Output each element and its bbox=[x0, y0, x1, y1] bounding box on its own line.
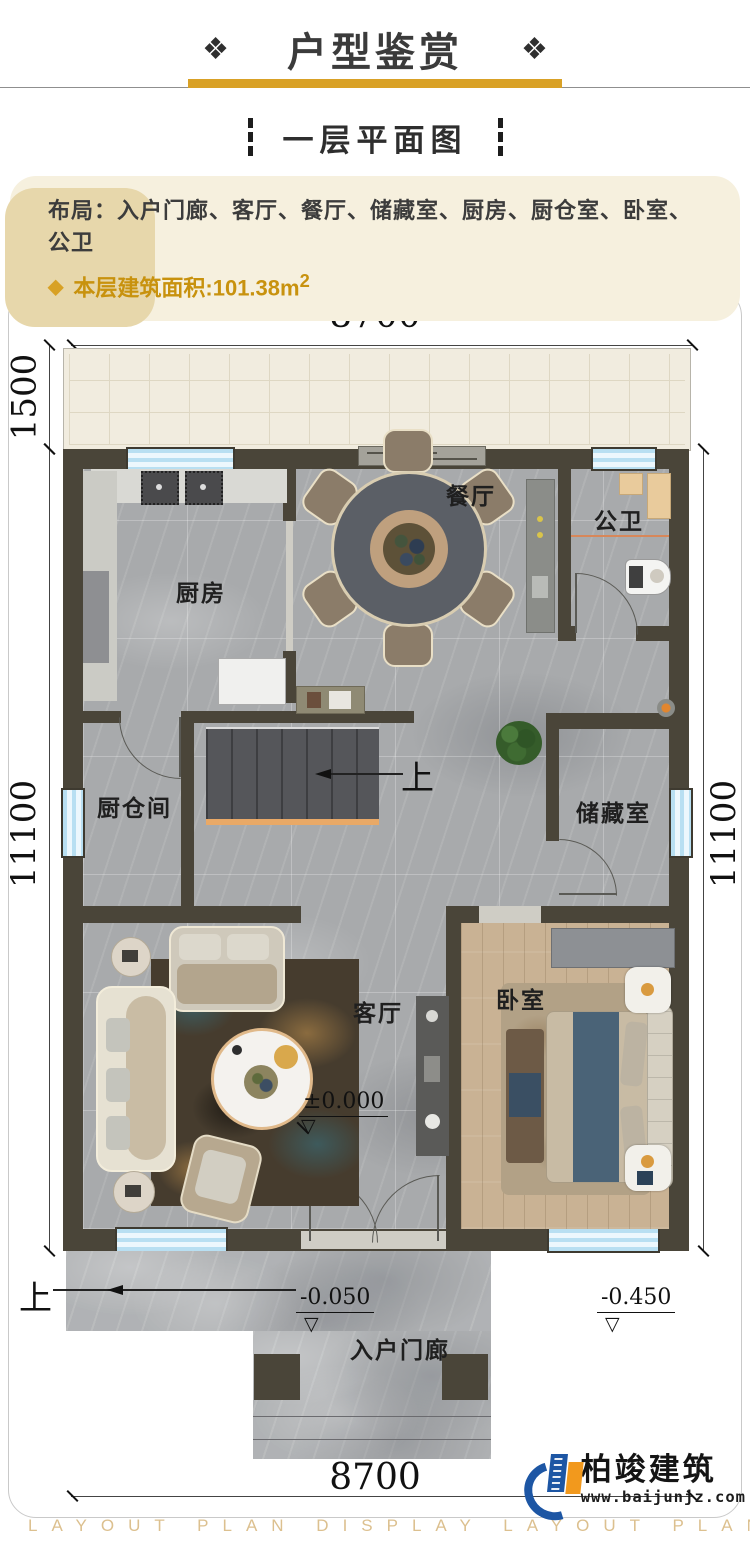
room-label-porch: 入户门廊 bbox=[350, 1331, 450, 1365]
toilet-cistern bbox=[629, 566, 643, 588]
bench-cloth bbox=[509, 1073, 541, 1117]
terrace bbox=[63, 348, 691, 451]
wall-pantry-top-a bbox=[63, 711, 121, 723]
bedroom-mat bbox=[551, 928, 675, 968]
brand-logo-icon bbox=[524, 1452, 575, 1516]
porch-step-line bbox=[253, 1439, 491, 1440]
bed-pillow bbox=[620, 1021, 649, 1087]
console-item bbox=[329, 691, 351, 709]
sofa-seat bbox=[177, 964, 277, 1004]
stair-direction-line bbox=[321, 773, 403, 775]
kitchen-cooktop bbox=[83, 571, 109, 663]
room-label-pantry: 厨仓间 bbox=[97, 789, 172, 823]
wall-storage-left bbox=[546, 713, 559, 841]
sofa-cushion bbox=[227, 934, 269, 960]
nightstand-lamp bbox=[641, 1155, 654, 1168]
level-marker-living: ±0.000 bbox=[299, 1089, 388, 1117]
porch-slab-upper bbox=[66, 1251, 491, 1331]
bath-shelf bbox=[619, 473, 643, 495]
console-decor bbox=[424, 1056, 440, 1082]
sofa-seat bbox=[126, 996, 166, 1160]
nightstand-lamp bbox=[641, 983, 654, 996]
wall-bath-bottom-b bbox=[636, 626, 669, 641]
dash-bar-icon-left bbox=[248, 118, 253, 156]
dim-terrace-depth: 1500 bbox=[8, 347, 47, 447]
sideboard-item bbox=[537, 516, 543, 522]
dim-line-top bbox=[71, 345, 693, 346]
toilet bbox=[625, 559, 671, 595]
decor-flower-icon-left: ❖ bbox=[202, 32, 229, 67]
dim-height-right: 11100 bbox=[699, 769, 742, 899]
stair-nosing-strip bbox=[206, 819, 379, 825]
bath-vanity bbox=[647, 473, 671, 519]
dining-chair bbox=[383, 623, 433, 667]
side-table-books bbox=[125, 1185, 141, 1197]
wall-mid-a bbox=[63, 906, 301, 923]
dim-line-terrace bbox=[49, 345, 50, 449]
sideboard-item bbox=[532, 576, 548, 598]
kitchen-side-counter bbox=[83, 471, 117, 701]
dim-line-left bbox=[49, 449, 50, 1251]
kitchen-cabinet-edge bbox=[286, 521, 293, 651]
terrace-tiles bbox=[69, 354, 685, 445]
area-text: 本层建筑面积:101.38m2 bbox=[73, 270, 309, 302]
stair-arrow-icon bbox=[315, 769, 331, 779]
dash-bar-icon-right bbox=[498, 118, 503, 156]
page-header: ❖ 户型鉴赏 ❖ bbox=[0, 0, 750, 92]
floor-plan-canvas: 8700 1500 11100 11100 bbox=[8, 288, 742, 1518]
tv-console bbox=[416, 996, 449, 1156]
kitchen-sink-left bbox=[141, 471, 179, 505]
floor-subtitle: 一层平面图 bbox=[283, 115, 468, 160]
wall-mid-b bbox=[446, 906, 479, 923]
sideboard-item bbox=[537, 532, 543, 538]
title-underline-bar bbox=[188, 79, 562, 88]
sink-drain bbox=[156, 484, 162, 490]
stair-up-label: 上 bbox=[401, 751, 434, 799]
bedroom-window bbox=[547, 1227, 660, 1253]
area-sup: 2 bbox=[300, 270, 310, 291]
room-label-living: 客厅 bbox=[353, 994, 403, 1028]
kitchen-window bbox=[126, 447, 235, 471]
dining-sideboard bbox=[526, 479, 555, 633]
armchair-cushion bbox=[193, 1148, 247, 1205]
kitchen-sink-right bbox=[185, 471, 223, 505]
decor-flower-icon-right: ❖ bbox=[521, 32, 548, 67]
wall-pantry-right bbox=[181, 717, 194, 923]
side-table-top bbox=[111, 937, 151, 977]
coffee-table-plant bbox=[244, 1065, 278, 1099]
fridge bbox=[218, 658, 286, 705]
porch-up-label: 上 bbox=[19, 1271, 52, 1319]
corner-fixture bbox=[657, 699, 675, 717]
page-title: 户型鉴赏 bbox=[287, 20, 463, 78]
console-decor bbox=[426, 1010, 438, 1022]
coffee-table bbox=[211, 1028, 313, 1130]
toilet-bowl bbox=[650, 569, 664, 583]
porch-arrow-icon bbox=[107, 1285, 123, 1295]
nightstand-bottom bbox=[625, 1145, 671, 1191]
table-centerpiece-plant bbox=[383, 523, 435, 575]
wall-mid-c bbox=[541, 906, 689, 923]
hall-plant bbox=[496, 721, 542, 765]
room-label-kitchen: 厨房 bbox=[176, 574, 226, 608]
nightstand-top bbox=[625, 967, 671, 1013]
diamond-bullet-icon: ◆ bbox=[48, 274, 63, 299]
porch-pillar-left bbox=[254, 1354, 300, 1400]
living-window bbox=[115, 1227, 228, 1253]
area-line: ◆ 本层建筑面积:101.38m2 bbox=[48, 270, 702, 302]
bath-window bbox=[591, 447, 657, 471]
elevation-triangle-icon: ▽ bbox=[304, 1315, 319, 1334]
room-label-bedroom: 卧室 bbox=[496, 981, 546, 1015]
side-table-bottom bbox=[113, 1171, 155, 1213]
porch-direction-line bbox=[53, 1289, 296, 1291]
porch-step-line bbox=[253, 1416, 491, 1417]
pantry-window bbox=[61, 788, 85, 858]
brand-website: www.baijunjz.com bbox=[581, 1488, 746, 1506]
subtitle-row: 一层平面图 bbox=[0, 114, 750, 160]
coffee-table-tray bbox=[274, 1045, 298, 1069]
level-marker-outdoor: -0.450 bbox=[597, 1285, 675, 1313]
console-decor bbox=[425, 1114, 440, 1129]
sink-drain bbox=[200, 484, 206, 490]
layout-info-box: 布局：入户门廊、客厅、餐厅、储藏室、厨房、厨仓室、卧室、公卫 ◆ 本层建筑面积:… bbox=[10, 176, 740, 321]
room-label-bath: 公卫 bbox=[594, 502, 644, 536]
sofa-top bbox=[169, 926, 285, 1012]
side-table-books bbox=[122, 950, 138, 962]
bed-bench bbox=[506, 1029, 544, 1163]
sofa-pillow bbox=[106, 1068, 130, 1102]
room-label-storage: 储藏室 bbox=[576, 794, 651, 828]
coffee-table-item bbox=[232, 1045, 242, 1055]
console-item bbox=[307, 692, 321, 708]
room-label-dining: 餐厅 bbox=[446, 477, 496, 511]
dim-height-left: 11100 bbox=[8, 769, 49, 899]
dining-chair bbox=[383, 429, 433, 473]
brand-name: 柏竣建筑 bbox=[581, 1452, 717, 1488]
sofa-cushion bbox=[179, 934, 221, 960]
sofa-pillow bbox=[106, 1116, 130, 1150]
layout-label: 布局： bbox=[48, 198, 117, 223]
bedroom-door-header bbox=[479, 906, 541, 923]
layout-items: 入户门廊、客厅、餐厅、储藏室、厨房、厨仓室、卧室、公卫 bbox=[48, 198, 692, 255]
elevation-triangle-icon: ▽ bbox=[605, 1315, 620, 1334]
brand-logo: 柏竣建筑 www.baijunjz.com bbox=[524, 1452, 746, 1522]
hallway-console bbox=[296, 686, 365, 714]
sofa-left bbox=[96, 986, 176, 1172]
sofa-pillow bbox=[106, 1018, 130, 1052]
wall-bath-bottom-a bbox=[558, 626, 576, 641]
wall-bath-left bbox=[558, 469, 571, 641]
layout-line: 布局：入户门廊、客厅、餐厅、储藏室、厨房、厨仓室、卧室、公卫 bbox=[48, 193, 702, 257]
storage-window bbox=[669, 788, 693, 858]
nightstand-item bbox=[637, 1171, 653, 1185]
bed-blue-runner bbox=[573, 1012, 619, 1182]
wall-storage-top bbox=[546, 713, 669, 729]
level-marker-porch: -0.050 bbox=[296, 1285, 374, 1313]
